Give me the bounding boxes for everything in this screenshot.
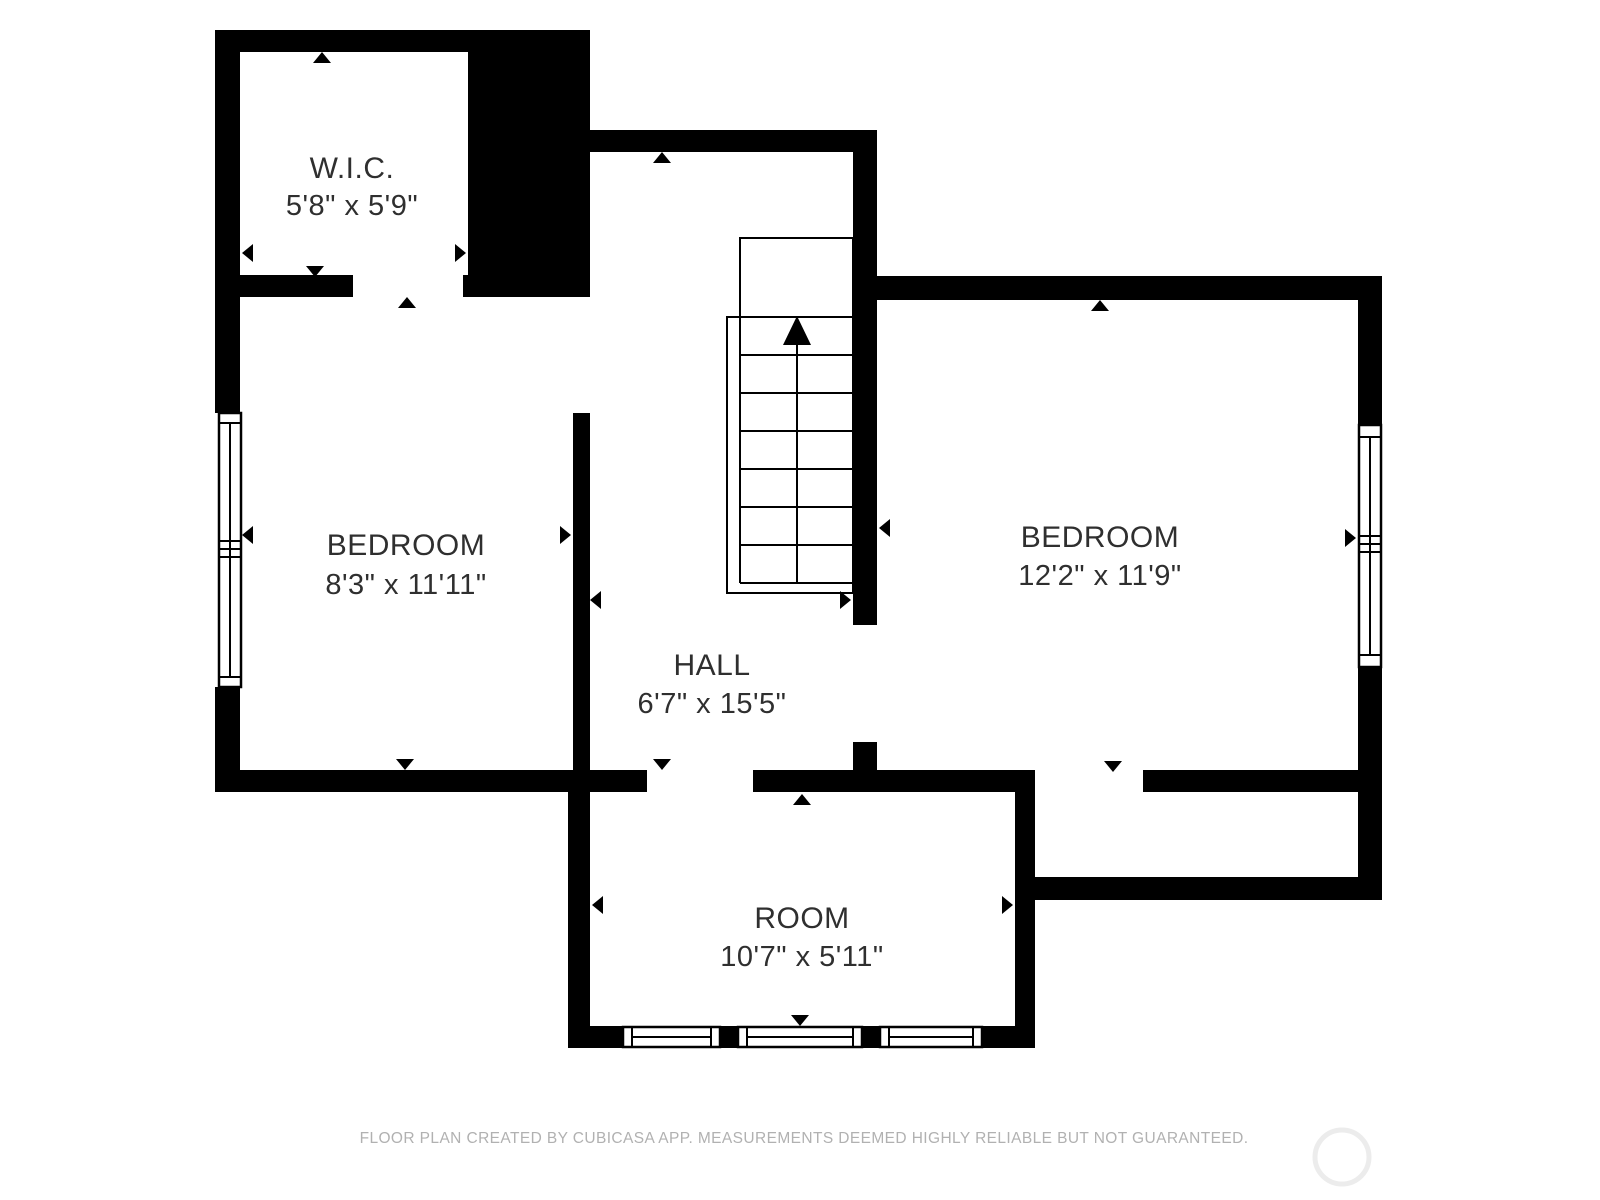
room-dims-room: 10'7" x 5'11" (720, 941, 883, 973)
wall-hall-top (588, 130, 877, 152)
cubicasa-watermark-icon (1315, 1130, 1369, 1184)
room-dims-hall: 6'7" x 15'5" (638, 688, 787, 720)
marker-room-left-icon (592, 896, 603, 914)
wall-room-right (1015, 770, 1035, 1048)
floor-plan-canvas: W.I.C. 5'8" x 5'9" BEDROOM 8'3" x 11'11"… (0, 0, 1600, 1200)
wall-bottom-middle-segment (753, 770, 1035, 792)
room-label-room: ROOM (754, 902, 849, 935)
window-left-wall (219, 413, 241, 687)
marker-room-up-icon (793, 794, 811, 805)
wall-wic-bottom-right (463, 275, 590, 297)
marker-wic-up-icon (313, 52, 331, 63)
footer-disclaimer: FLOOR PLAN CREATED BY CUBICASA APP. MEAS… (360, 1130, 1249, 1147)
wall-notch-bottom (1035, 877, 1382, 900)
wall-bottom-right-segment (1143, 770, 1382, 792)
stairs-up-arrow-icon (783, 316, 811, 583)
floor-plan-svg: W.I.C. 5'8" x 5'9" BEDROOM 8'3" x 11'11"… (0, 0, 1600, 1200)
wall-wic-bottom-left (215, 275, 353, 297)
marker-room-right-icon (1002, 896, 1013, 914)
room-label-bedroom-right: BEDROOM (1021, 521, 1180, 554)
marker-bedroom1-up-icon (398, 297, 416, 308)
wall-left-upper (215, 30, 240, 413)
marker-hall-left-icon (590, 591, 601, 609)
room-label-wic: W.I.C. (310, 152, 395, 185)
marker-hall-up-icon (653, 152, 671, 163)
marker-wic-right-icon (455, 244, 466, 262)
marker-bedroom2-down-icon (1104, 761, 1122, 772)
wall-room-bottom-b (720, 1026, 738, 1048)
room-label-bedroom-left: BEDROOM (327, 529, 486, 562)
wall-room-left (568, 770, 590, 1048)
window-bottom-1 (623, 1027, 720, 1047)
wall-bedroom2-top (853, 276, 1382, 300)
marker-bedroom2-left-icon (879, 519, 890, 537)
wall-bedroom-hall (573, 413, 590, 792)
wall-room-bottom-d (982, 1026, 1035, 1048)
marker-bedroom2-right-icon (1345, 529, 1356, 547)
room-labels: W.I.C. 5'8" x 5'9" BEDROOM 8'3" x 11'11"… (286, 152, 1182, 973)
window-bottom-3 (880, 1027, 982, 1047)
room-dims-bedroom-right: 12'2" x 11'9" (1018, 560, 1181, 592)
wall-room-bottom-a (568, 1026, 623, 1048)
marker-bedroom1-right-icon (560, 526, 571, 544)
wall-chimney-mass (468, 30, 590, 297)
marker-bedroom2-up-icon (1091, 300, 1109, 311)
room-label-hall: HALL (673, 649, 750, 682)
marker-hall-down-icon (653, 759, 671, 770)
marker-wic-left-icon (242, 244, 253, 262)
wall-bedroom2-right-upper (1358, 276, 1382, 425)
window-bottom-2 (738, 1027, 862, 1047)
room-dims-wic: 5'8" x 5'9" (286, 190, 418, 222)
stairs-landing (740, 238, 853, 317)
marker-bedroom1-left-icon (242, 526, 253, 544)
stairs-arrow-head (783, 316, 811, 345)
wall-hall-right-upper (853, 152, 877, 625)
room-dims-bedroom-left: 8'3" x 11'11" (325, 569, 486, 601)
marker-room-down-icon (791, 1015, 809, 1026)
wall-room-bottom-c (862, 1026, 880, 1048)
stairs-outer-box (727, 317, 853, 593)
marker-bedroom1-down-icon (396, 759, 414, 770)
staircase (727, 238, 853, 593)
window-right-wall (1359, 425, 1381, 667)
